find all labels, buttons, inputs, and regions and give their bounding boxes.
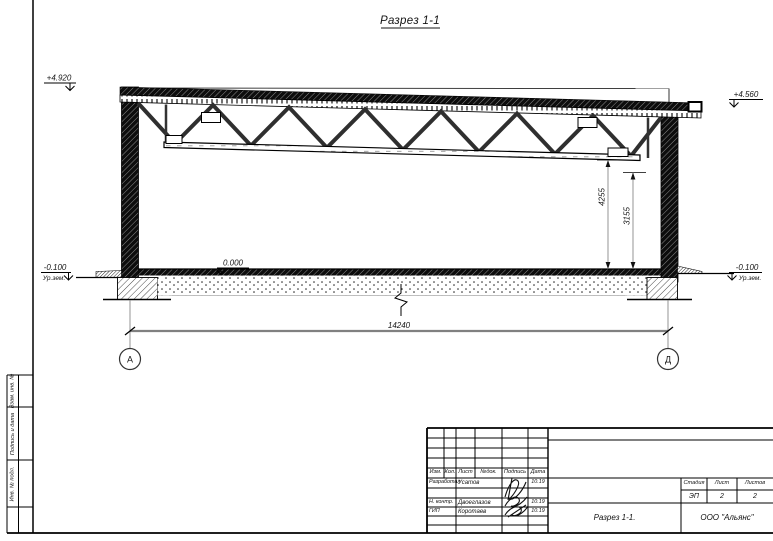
titleblock-header-izm: Изм. <box>427 468 444 478</box>
truss-gusset-plate <box>166 136 182 144</box>
elevation-flag-roof-left <box>44 83 76 91</box>
titleblock-header-list: Лист <box>456 468 475 478</box>
foundation-left <box>103 278 172 300</box>
titleblock-sheets-value: 2 <box>737 490 773 503</box>
truss-gusset-plate <box>578 118 597 128</box>
foundation-right <box>625 278 692 300</box>
titleblock-sheets-header: Листов <box>737 478 773 490</box>
left-column <box>122 87 139 282</box>
floor-concrete <box>156 276 652 296</box>
ground-label-right: Ур.зем. <box>738 275 762 282</box>
titleblock-role-ncontrol: Н. контр. <box>429 498 459 507</box>
axis-label-left: А <box>127 355 133 365</box>
titleblock-role-developer: Разработал <box>429 478 459 488</box>
ground-left <box>76 271 122 278</box>
titleblock-sheet-value: 2 <box>707 490 737 503</box>
titleblock-header-date: Дата <box>528 468 548 478</box>
elevation-floor: 0.000 <box>223 259 244 268</box>
roof-edge-plate <box>689 102 702 112</box>
titleblock-name-ncontrol: Двоеглазов <box>458 498 501 507</box>
floor-slab <box>139 269 662 316</box>
truss-bottom-chord <box>164 142 640 161</box>
titleblock-name-developer: Усатов <box>458 478 501 488</box>
drawing-sheet: Разрез 1-1 +4.920 +4.560 0.000 -0.100 Ур… <box>0 0 773 541</box>
titleblock-date-gip: 10.19 <box>528 507 548 516</box>
ground-right <box>678 266 735 274</box>
elevation-ground-left: -0.100 <box>44 263 67 272</box>
titleblock-role-gip: ГИП <box>429 507 459 516</box>
titleblock-stage-header: Стадия <box>681 478 707 490</box>
titleblock-sheet-header: Лист <box>707 478 737 490</box>
elevation-roof-left: +4.920 <box>47 74 72 83</box>
axis-label-right: Д <box>665 355 671 365</box>
dimension-span: 14240 <box>388 321 411 330</box>
titleblock-company: ООО "Альянс" <box>681 503 773 533</box>
ground-label-left: Ур.зем. <box>42 275 66 282</box>
section-title: Разрез 1-1 <box>380 15 440 27</box>
elevation-flag-roof-right <box>729 100 763 108</box>
elevation-roof-right: +4.560 <box>734 90 759 99</box>
titleblock-name-gip: Коротаев <box>458 507 501 516</box>
right-column <box>661 103 678 282</box>
titleblock-stage-value: ЭП <box>681 490 707 503</box>
parapet-line <box>139 88 669 89</box>
section-drawing: Разрез 1-1 +4.920 +4.560 0.000 -0.100 Ур… <box>0 0 773 541</box>
side-stamp-podpis: Подпись и дата <box>7 407 19 460</box>
side-stamp-inv: Инв. № подл. <box>7 460 19 507</box>
truss-gusset-plate <box>608 148 628 157</box>
titleblock-doc-name: Разрез 1-1. <box>548 503 681 533</box>
titleblock-date-developer: 10.19 <box>528 478 548 488</box>
titleblock-header-doc: №док. <box>475 468 502 478</box>
truss-gusset-plate <box>202 113 221 123</box>
side-stamp-vzam: Взам. инв. № <box>7 375 19 407</box>
height-dimension-4255 <box>597 160 620 269</box>
titleblock-header-sign: Подпись <box>502 468 528 478</box>
titleblock-header-kol: Кол. <box>444 468 456 478</box>
elevation-ground-right: -0.100 <box>736 263 759 272</box>
dimension-clear-height: 3155 <box>623 207 632 225</box>
titleblock-date-ncontrol: 10.19 <box>528 498 548 507</box>
dimension-truss-height: 4255 <box>598 188 607 206</box>
